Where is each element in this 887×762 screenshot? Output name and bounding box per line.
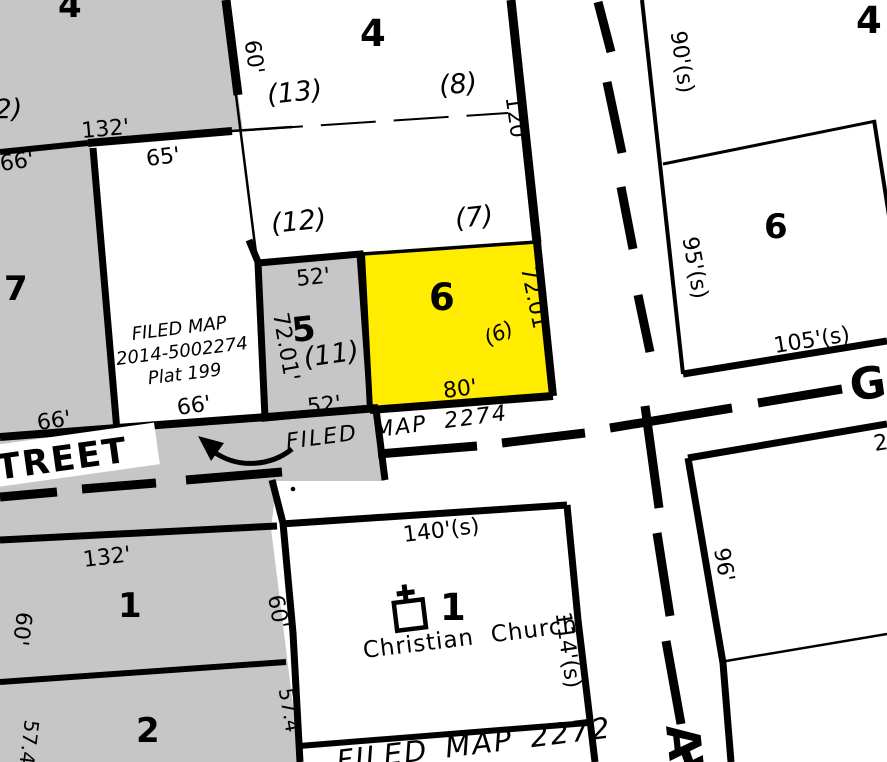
bottomright-subdivision-line: [720, 634, 887, 662]
right-parcel-east-line: [874, 120, 887, 235]
street-name-east-initial: G: [846, 356, 887, 412]
dim-65: 65': [145, 143, 182, 172]
centerline-dash: [378, 446, 477, 454]
centerline-dash: [758, 389, 842, 403]
tax-map-svg: TREET 4 4 7 5 6 4 6 1 1 2 (2) (13) (8) (…: [0, 0, 887, 762]
dim-60-left: 60': [7, 610, 36, 647]
dim-95s: 95'(s): [677, 235, 713, 301]
lot-number-7: 7: [4, 269, 28, 309]
lot-paren-12: (12): [269, 203, 327, 240]
centerline-dash: [621, 187, 633, 249]
street-centerline-vertical: [598, 2, 689, 762]
street-name-vertical: AV: [655, 722, 716, 762]
lot-number-block-topleft: 4: [58, 0, 82, 26]
bottomright-parcel-west-line: [688, 458, 731, 762]
centerline-dash: [638, 295, 650, 352]
filed-map-2014-note: FILED MAP 2014-5002274 Plat 199: [112, 310, 252, 393]
lot-number-2-gray: 2: [136, 711, 160, 751]
parcel-5-nw-tick: [249, 240, 258, 262]
dim-66-filedmap: 66': [175, 391, 212, 420]
filedmap-parcel-east-line: [236, 95, 257, 261]
dim-66-topleft: 66': [0, 147, 36, 176]
lot-paren-7: (7): [453, 200, 494, 235]
bottomright-parcel-north-line: [688, 424, 887, 458]
centerline-dash: [607, 82, 622, 153]
lot-paren-13: (13): [265, 74, 323, 111]
dim-52-top: 52': [295, 264, 331, 292]
centerline-dash: [666, 641, 681, 724]
lot-paren-8: (8): [437, 67, 478, 102]
lot-number-block-topright: 4: [856, 0, 882, 42]
lot-number-6-highlighted: 6: [429, 276, 455, 319]
dim-52-bottom: 52': [306, 392, 342, 420]
lot-number-block-mid: 4: [360, 12, 386, 55]
filed-map-2272-note: FILED MAP 2272: [335, 710, 614, 762]
survey-dot: [291, 487, 296, 492]
church-icon-building: [394, 599, 426, 630]
tax-map-stage: TREET 4 4 7 5 6 4 6 1 1 2 (2) (13) (8) (…: [0, 0, 887, 762]
centerline-dash: [82, 483, 156, 489]
dim-140s: 140'(s): [402, 514, 481, 548]
dim-80: 80': [442, 375, 479, 404]
centerline-dash-cross-h: [610, 408, 732, 428]
centerline-dash: [598, 2, 611, 52]
dim-90s: 90'(s): [665, 29, 698, 95]
lot-row-divider-dashed: [248, 113, 508, 130]
dim-120: 120': [500, 95, 531, 146]
church-icon: [392, 583, 426, 631]
dim-2-edge: 2: [872, 430, 887, 457]
dim-66-parcel7: 66': [35, 406, 72, 435]
dim-132-top: 132': [80, 115, 130, 144]
centerline-dash: [0, 492, 57, 497]
centerline-dash: [502, 433, 585, 443]
church-icon-cross-h: [396, 589, 414, 596]
lot-number-6-right: 6: [764, 207, 788, 247]
lot-paren-2: (2): [0, 94, 22, 125]
centerline-dash: [657, 533, 670, 616]
lot-number-1-church: 1: [440, 586, 466, 629]
dim-96: 96': [708, 546, 739, 584]
dim-60-top: 60': [239, 38, 268, 75]
right-lot-divider: [663, 121, 876, 164]
lot-number-1-gray: 1: [118, 586, 142, 626]
